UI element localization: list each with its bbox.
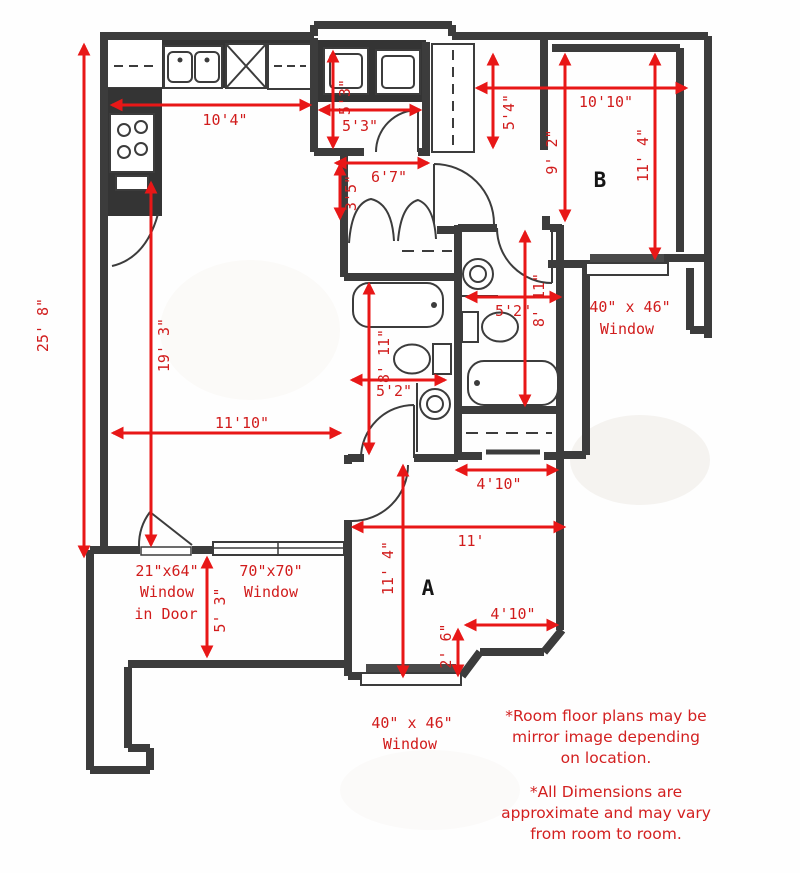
patio-door-window (141, 547, 191, 555)
patio-door (139, 512, 192, 546)
hall-door (434, 164, 494, 224)
dim-utility-width: 5'3" (342, 117, 378, 135)
patio-window (213, 542, 344, 555)
bathtub-1 (353, 283, 443, 327)
door-window-word2: in Door (134, 605, 197, 623)
right-window-word: Window (600, 320, 654, 338)
dim-hall-width: 6'7" (371, 168, 407, 186)
dim-hall-depth: 3'5" (342, 175, 360, 211)
dim-living-length: 19' 3" (155, 318, 173, 372)
dim-roomb-depth: 9' 2" (543, 129, 561, 174)
dim-bath2-length: 8' 11" (530, 273, 548, 327)
dim-closet-width: 4'10" (476, 475, 521, 493)
stove (110, 114, 154, 172)
dim-balcony-depth: 5' 3" (211, 587, 229, 632)
dim-bath2-width: 5'2" (495, 302, 531, 320)
floor-plan-page: 25' 8" 19' 3" 10'4" 5'3" 5'3" 6'7" 3'5" … (0, 0, 800, 873)
bottom-window-word: Window (383, 735, 437, 753)
right-window-size: 40" x 46" (589, 298, 670, 316)
sink-basin-left (168, 52, 192, 82)
toilet-1-tank (433, 344, 451, 374)
room-b-label: B (594, 168, 607, 192)
note-approx-line3: from room to room. (530, 825, 682, 843)
dim-roomb-width: 10'10" (579, 93, 633, 111)
toilet-1-bowl (394, 345, 430, 374)
dim-rooma-length: 11' 4" (379, 541, 397, 595)
linen-closet-door-right (398, 200, 436, 241)
note-approx-line1: *All Dimensions are (530, 783, 682, 801)
dim-notch-width: 4'10" (490, 605, 535, 623)
dim-bath1-width: 5'2" (376, 382, 412, 400)
room-a-label: A (422, 576, 435, 600)
dim-utility-depth: 5'3" (336, 79, 354, 115)
note-mirror-line2: mirror image depending (512, 728, 700, 746)
bottom-window-size: 40" x 46" (371, 714, 452, 732)
dim-roomb-length: 11' 4" (634, 128, 652, 182)
door-window-size: 21"x64" (135, 562, 198, 580)
note-mirror-line1: *Room floor plans may be (505, 707, 706, 725)
patio-window-size: 70"x70" (239, 562, 302, 580)
dim-bath1-length: 8' 11" (375, 329, 393, 383)
dim-rooma-width: 11' (457, 532, 484, 550)
door-window-word: Window (140, 583, 194, 601)
sink-basin-right (195, 52, 219, 82)
dim-left-total: 25' 8" (43, 325, 97, 343)
oven-drawer (116, 176, 148, 190)
note-mirror-line3: on location. (561, 749, 652, 767)
dim-kitchen-width: 10'4" (202, 111, 247, 129)
utility-door (376, 110, 418, 152)
patio-window-word: Window (244, 583, 298, 601)
dim-living-width: 11'10" (215, 414, 269, 432)
note-approx-line2: approximate and may vary (501, 804, 711, 822)
toilet-2-tank (462, 312, 478, 342)
bathtub-2 (468, 361, 558, 405)
rooma-door-arc (352, 465, 408, 521)
dim-entry-depth: 5'4" (500, 94, 518, 130)
dim-notch-depth: 2' 6" (437, 623, 455, 668)
